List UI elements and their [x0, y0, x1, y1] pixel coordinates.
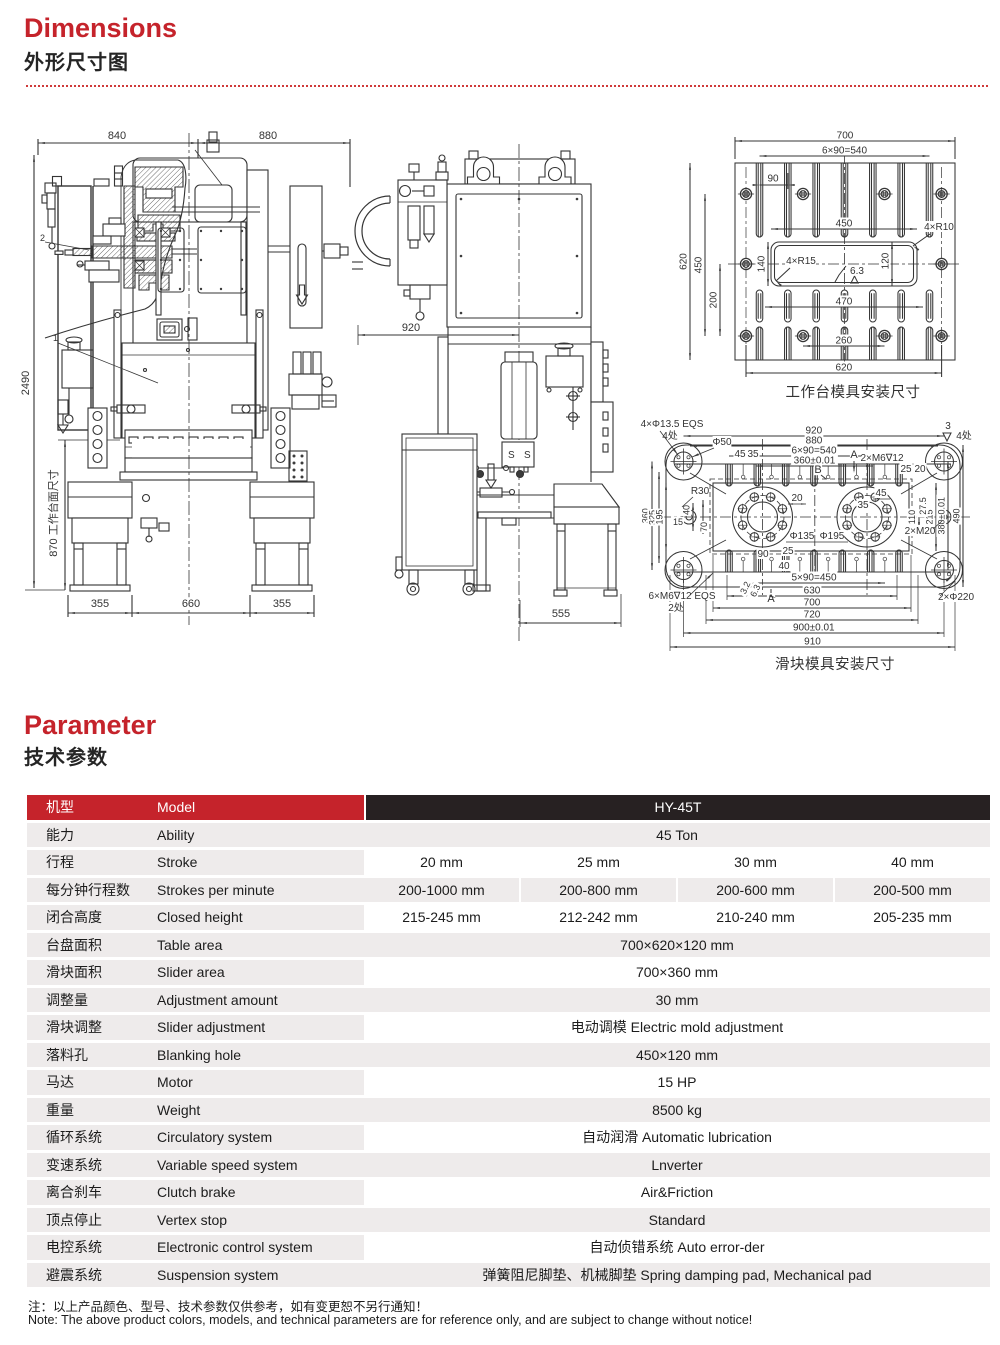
svg-text:120: 120: [881, 252, 892, 269]
svg-text:880: 880: [259, 130, 277, 142]
svg-text:910: 910: [804, 637, 821, 648]
svg-text:840: 840: [108, 130, 126, 142]
svg-text:380±0.01: 380±0.01: [937, 497, 947, 534]
svg-text:滑块模具安装尺寸: 滑块模具安装尺寸: [775, 656, 895, 673]
svg-text:S: S: [508, 450, 515, 461]
svg-text:2×Φ220: 2×Φ220: [938, 592, 975, 603]
svg-text:20: 20: [914, 464, 926, 475]
svg-text:700: 700: [837, 131, 854, 142]
svg-text:720: 720: [804, 610, 821, 621]
svg-text:490: 490: [952, 508, 962, 523]
svg-text:S: S: [524, 450, 531, 461]
svg-text:27.5: 27.5: [918, 497, 928, 515]
svg-text:45: 45: [734, 449, 746, 460]
svg-text:4处: 4处: [956, 430, 972, 442]
svg-text:A: A: [767, 593, 775, 605]
svg-text:6×90=540: 6×90=540: [822, 146, 867, 157]
svg-text:555: 555: [552, 608, 570, 620]
svg-text:920: 920: [402, 322, 420, 334]
svg-text:Φ135: Φ135: [790, 531, 815, 542]
svg-text:700: 700: [804, 598, 821, 609]
svg-text:25: 25: [900, 464, 912, 475]
svg-text:620: 620: [835, 363, 852, 374]
svg-text:4×R15: 4×R15: [786, 256, 816, 267]
svg-text:40: 40: [778, 561, 790, 572]
svg-text:35: 35: [857, 500, 869, 511]
svg-text:6.3: 6.3: [850, 266, 864, 277]
svg-text:R30: R30: [691, 486, 710, 497]
svg-text:70: 70: [699, 522, 709, 532]
svg-text:90: 90: [767, 174, 779, 185]
svg-text:140: 140: [757, 255, 768, 272]
svg-text:25: 25: [782, 546, 794, 557]
svg-text:355: 355: [273, 598, 291, 610]
svg-text:195: 195: [655, 509, 665, 524]
svg-text:15: 15: [673, 517, 683, 527]
svg-text:6×M6∇12 EQS: 6×M6∇12 EQS: [648, 591, 715, 602]
svg-text:2×M6∇12: 2×M6∇12: [860, 453, 904, 464]
svg-text:4处: 4处: [662, 430, 678, 442]
svg-text:2处: 2处: [668, 602, 684, 614]
svg-text:B: B: [814, 464, 821, 476]
svg-text:5×90=450: 5×90=450: [791, 573, 836, 584]
svg-text:620: 620: [679, 253, 690, 270]
svg-text:2: 2: [40, 233, 45, 243]
svg-text:4×R10: 4×R10: [924, 222, 954, 233]
svg-text:450: 450: [694, 256, 705, 273]
svg-text:870 工作台面尺寸: 870 工作台面尺寸: [46, 469, 60, 556]
svg-text:450: 450: [836, 219, 853, 230]
svg-text:260: 260: [835, 336, 852, 347]
svg-text:660: 660: [182, 598, 200, 610]
svg-text:3: 3: [945, 421, 951, 432]
svg-text:2490: 2490: [20, 371, 32, 395]
svg-text:20: 20: [791, 493, 803, 504]
svg-text:4×Φ13.5 EQS: 4×Φ13.5 EQS: [641, 419, 704, 430]
svg-text:470: 470: [836, 297, 853, 308]
svg-text:200: 200: [709, 291, 720, 308]
svg-text:Φ195: Φ195: [820, 531, 845, 542]
svg-text:工作台模具安装尺寸: 工作台模具安装尺寸: [786, 384, 921, 401]
svg-text:110: 110: [907, 510, 917, 524]
svg-text:90: 90: [757, 549, 769, 560]
svg-text:35: 35: [747, 449, 759, 460]
svg-text:630: 630: [804, 586, 821, 597]
svg-text:2×M20: 2×M20: [905, 526, 936, 537]
svg-text:900±0.01: 900±0.01: [793, 623, 835, 634]
svg-text:A: A: [850, 449, 858, 461]
svg-text:Φ50: Φ50: [712, 437, 732, 448]
svg-text:45: 45: [875, 488, 887, 499]
svg-text:1: 1: [53, 333, 58, 343]
svg-text:355: 355: [91, 598, 109, 610]
